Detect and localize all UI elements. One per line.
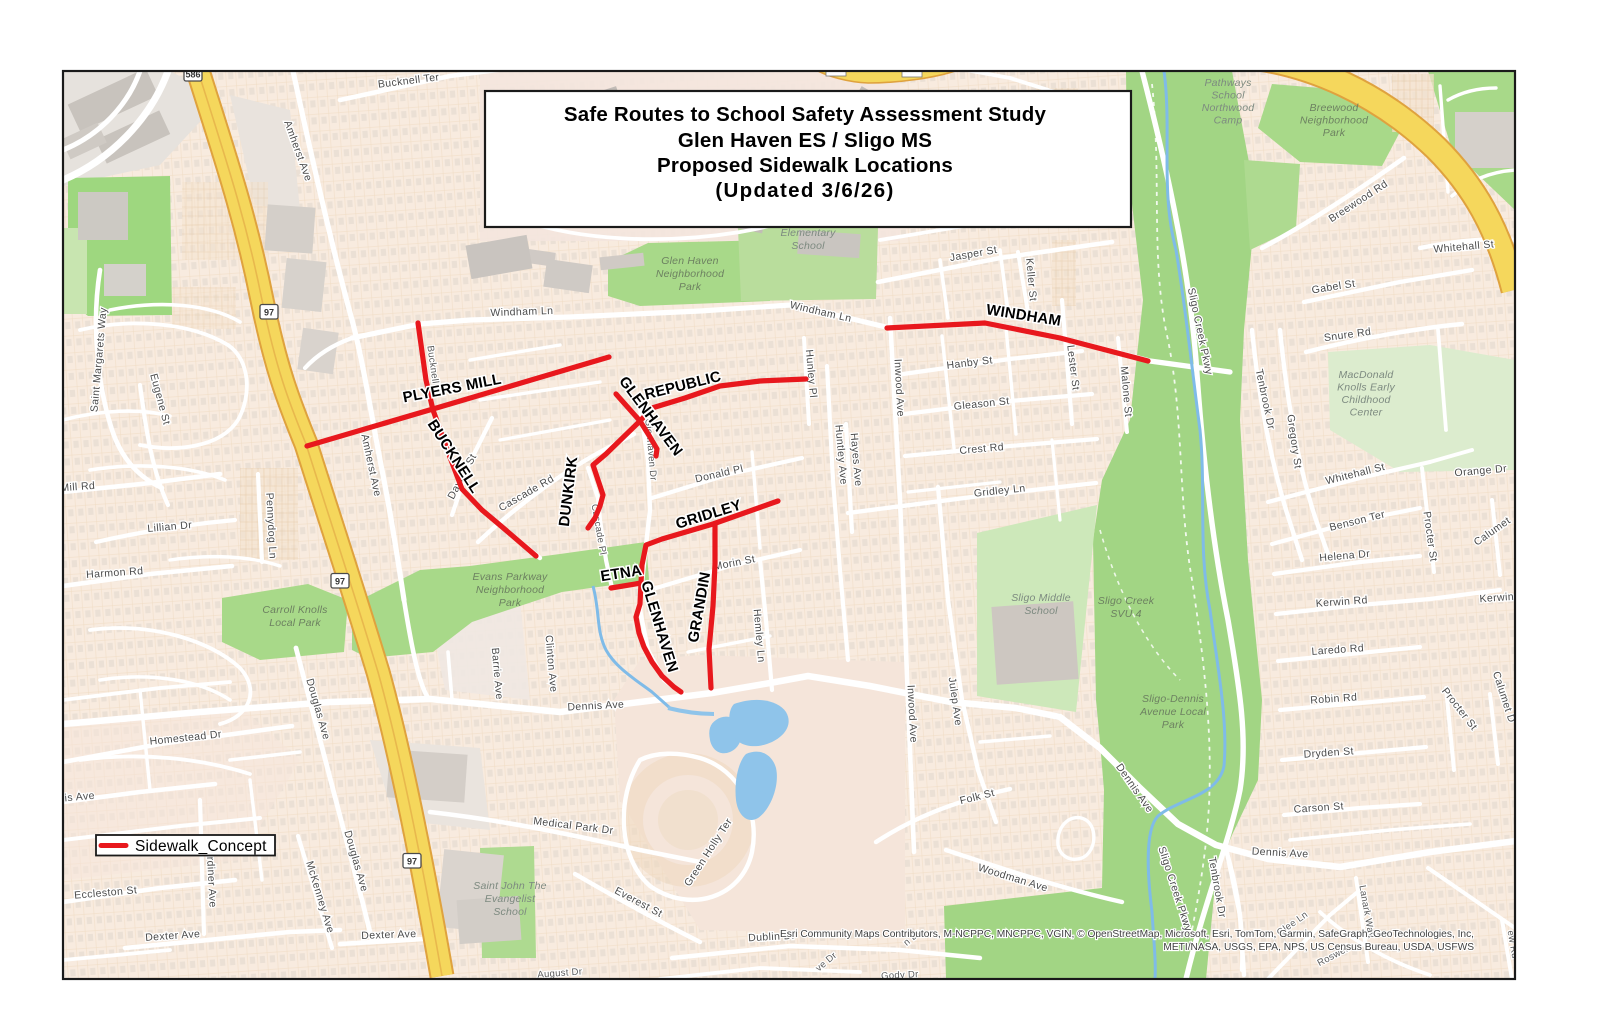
svg-text:97: 97 bbox=[407, 857, 417, 867]
svg-text:METI/NASA, USGS, EPA, NPS, US: METI/NASA, USGS, EPA, NPS, US Census Bur… bbox=[1163, 942, 1474, 953]
svg-text:97: 97 bbox=[335, 577, 345, 587]
svg-text:Carroll KnollsLocal Park: Carroll KnollsLocal Park bbox=[262, 604, 328, 629]
svg-text:Mill Rd: Mill Rd bbox=[60, 480, 96, 494]
svg-text:Safe Routes to School Safety A: Safe Routes to School Safety Assessment … bbox=[564, 103, 1047, 126]
svg-text:97: 97 bbox=[264, 308, 274, 318]
svg-text:(Updated 3/6/26): (Updated 3/6/26) bbox=[715, 179, 894, 202]
svg-text:Glen Haven ES / Sligo MS: Glen Haven ES / Sligo MS bbox=[678, 129, 932, 152]
svg-text:Kerwin: Kerwin bbox=[1479, 591, 1514, 605]
svg-text:Dexter Ave: Dexter Ave bbox=[361, 928, 417, 942]
svg-text:Windham Ln: Windham Ln bbox=[490, 305, 553, 319]
svg-text:Sidewalk_Concept: Sidewalk_Concept bbox=[135, 838, 267, 855]
svg-text:Esri Community Maps Contributo: Esri Community Maps Contributors, M-NCPP… bbox=[780, 929, 1474, 940]
svg-text:Proposed Sidewalk Locations: Proposed Sidewalk Locations bbox=[657, 154, 953, 177]
